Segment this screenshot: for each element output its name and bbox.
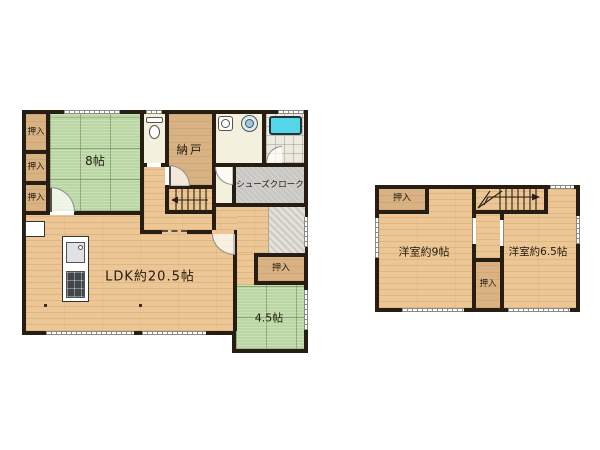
wall bbox=[476, 210, 544, 214]
wall bbox=[254, 281, 304, 285]
window bbox=[46, 331, 134, 335]
window bbox=[375, 218, 379, 258]
hall-lower bbox=[144, 214, 237, 230]
stairs-steps-floor1 bbox=[169, 189, 212, 210]
window bbox=[146, 110, 162, 114]
wall bbox=[262, 114, 266, 163]
wall bbox=[425, 189, 429, 210]
toilet-tank-icon bbox=[146, 117, 163, 123]
wall bbox=[258, 253, 304, 257]
wall bbox=[379, 210, 429, 214]
kitchen-stove-icon bbox=[66, 271, 85, 298]
wall bbox=[74, 211, 140, 215]
room-western-65-upper bbox=[548, 189, 576, 214]
bathtub-icon bbox=[269, 116, 302, 135]
cabinet-icon bbox=[25, 221, 45, 237]
washbasin-bowl-icon bbox=[221, 119, 230, 128]
wall bbox=[140, 114, 144, 234]
faucet-icon bbox=[78, 245, 83, 250]
room-label-oshiire-top: 押入 bbox=[27, 128, 44, 137]
door-opening bbox=[147, 163, 161, 167]
room-label-oshiire-2f-center: 押入 bbox=[479, 280, 496, 289]
pillar-mark bbox=[44, 304, 47, 307]
entrance-door bbox=[304, 217, 308, 247]
wall bbox=[216, 203, 304, 207]
wall bbox=[169, 210, 212, 214]
window bbox=[576, 216, 580, 244]
room-label-oshiire-bottom: 押入 bbox=[27, 194, 44, 203]
room-label-western-9: 洋室約9帖 bbox=[399, 247, 450, 258]
window bbox=[304, 290, 308, 330]
window bbox=[64, 110, 120, 114]
wall bbox=[544, 189, 548, 214]
window bbox=[508, 308, 570, 312]
stair-landing-2f bbox=[476, 214, 500, 258]
room-western-65 bbox=[500, 214, 576, 308]
window bbox=[278, 110, 304, 114]
wall bbox=[187, 230, 212, 234]
room-label-oshiire-2f-left: 押入 bbox=[393, 195, 411, 204]
door-opening bbox=[472, 218, 476, 244]
room-label-western-65: 洋室約6.5帖 bbox=[509, 247, 568, 258]
wall bbox=[140, 230, 162, 234]
wall bbox=[476, 258, 500, 262]
hall-to-tatami45 bbox=[237, 253, 254, 285]
floorplan-image: 押入 押入 押入 8帖 納戸 シューズクローク LDK約20.5帖 押入 4.5… bbox=[0, 0, 600, 450]
window bbox=[550, 185, 574, 189]
window bbox=[142, 331, 206, 335]
room-label-shoes-closet: シューズクローク bbox=[236, 181, 304, 190]
wall bbox=[165, 114, 169, 163]
room-label-tatami-45: 4.5帖 bbox=[255, 313, 284, 324]
washing-machine-drum-icon bbox=[245, 119, 254, 128]
stairs-steps-floor2 bbox=[476, 189, 544, 210]
door-opening bbox=[500, 220, 504, 246]
toilet-bowl-icon bbox=[149, 125, 160, 139]
open-boundary-dashed bbox=[162, 230, 187, 232]
window bbox=[402, 308, 464, 312]
room-label-oshiire-mid: 押入 bbox=[27, 163, 44, 172]
stairs-direction-arrow-icon bbox=[171, 197, 178, 204]
room-label-nando: 納戸 bbox=[177, 144, 204, 156]
room-label-tatami-8: 8帖 bbox=[85, 155, 105, 167]
pillar-mark bbox=[139, 304, 142, 307]
genkan-tile bbox=[268, 207, 305, 253]
room-label-oshiire-entry: 押入 bbox=[272, 265, 290, 274]
room-label-ldk: LDK約20.5帖 bbox=[105, 271, 195, 284]
